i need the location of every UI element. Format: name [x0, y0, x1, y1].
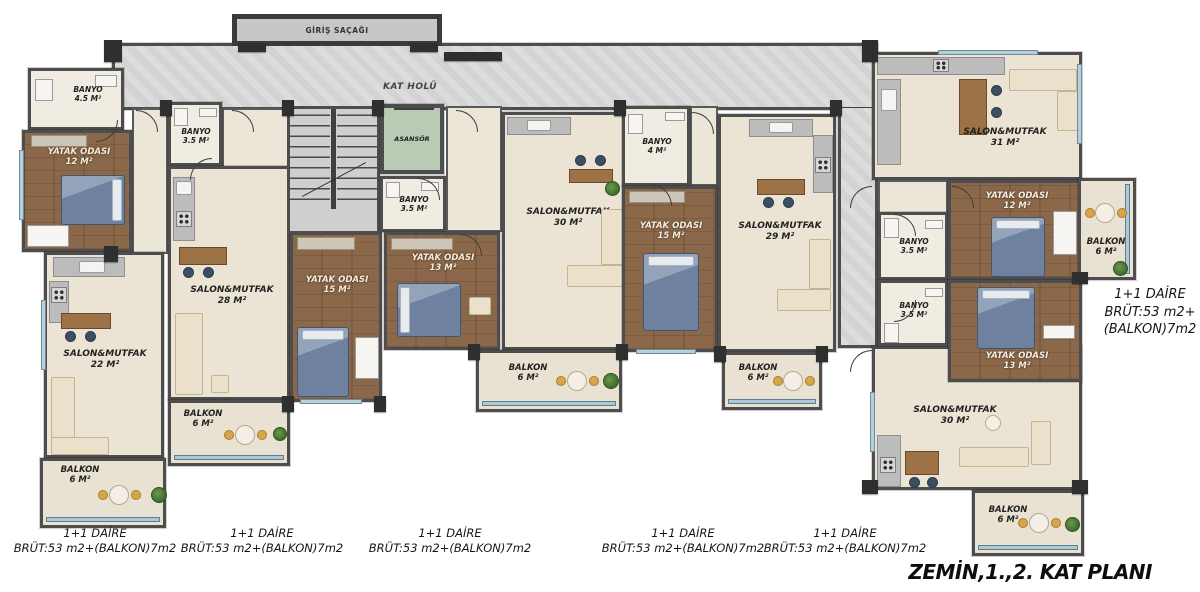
stair-rail — [331, 109, 336, 209]
elevator-door — [394, 108, 434, 110]
stairwell — [287, 106, 380, 234]
pillow-icon — [982, 290, 1030, 299]
shower-icon — [628, 114, 643, 134]
balcony-table-icon — [109, 485, 129, 505]
corridor-label: KAT HOLÜ — [365, 82, 455, 93]
room-apt6-salon: SALON&MUTFAK 31 M² — [872, 52, 1082, 180]
pillow-icon — [112, 179, 122, 221]
plant-icon — [1113, 261, 1128, 276]
canopy-label: GİRİŞ SAÇAĞI — [306, 26, 369, 35]
chair-icon — [909, 477, 920, 488]
sofa-icon — [601, 209, 623, 265]
balcony-table-icon — [235, 425, 255, 445]
sink-icon — [79, 261, 105, 273]
sink-icon — [199, 108, 217, 117]
plant-icon — [273, 427, 287, 441]
plant-icon — [151, 487, 167, 503]
column-pier — [714, 346, 726, 362]
canopy-post — [410, 43, 438, 52]
dining-table-icon — [61, 313, 111, 329]
door-arc — [850, 350, 872, 372]
stove-icon — [880, 457, 896, 473]
chair-icon — [763, 197, 774, 208]
sink-icon — [925, 288, 943, 297]
room-apt3-salon: SALON&MUTFAK 30 M² — [502, 112, 628, 350]
balcony-glass — [728, 399, 816, 404]
room-apt4-balkon: BALKON 6 M² — [722, 352, 822, 410]
balcony-glass — [978, 545, 1078, 550]
balcony-chair-icon — [257, 430, 267, 440]
bed-icon — [643, 253, 699, 331]
sink-icon — [925, 220, 943, 229]
stove-icon — [51, 287, 67, 303]
room-apt7-banyo: BANYO 3.5 M² — [878, 280, 948, 346]
column-pier — [830, 100, 842, 116]
column-pier — [616, 344, 628, 360]
armchair-icon — [469, 297, 491, 315]
wardrobe-icon — [297, 237, 355, 250]
coffee-table-icon — [985, 415, 1001, 431]
column-pier — [160, 100, 172, 116]
stairs-icon — [290, 109, 330, 209]
window — [870, 392, 875, 452]
balcony-chair-icon — [1018, 518, 1028, 528]
unit-label-5: 1+1 DAİRE BRÜT:53 m2+(BALKON)7m2 — [764, 526, 926, 556]
bed-icon — [977, 287, 1035, 349]
chair-icon — [783, 197, 794, 208]
column-pier — [282, 100, 294, 116]
balcony-glass — [174, 455, 284, 460]
room-label: SALON&MUTFAK 22 M² — [53, 349, 157, 371]
room-label: SALON&MUTFAK 31 M² — [935, 127, 1075, 149]
elevator: ASANSÖR — [380, 104, 444, 174]
room-apt3-banyo: BANYO 3.5 M² — [380, 176, 446, 232]
pillow-icon — [302, 330, 344, 340]
dining-table-icon — [905, 451, 939, 475]
room-label: BANYO 3.5 M² — [173, 127, 219, 145]
room-label: BANYO 4.5 M² — [53, 85, 123, 103]
apt6-entry-hall — [878, 180, 948, 214]
chair-icon — [85, 331, 96, 342]
chair-icon — [991, 85, 1002, 96]
chair-icon — [991, 107, 1002, 118]
room-apt3-balkon: BALKON 6 M² — [476, 350, 622, 412]
lintel-beam — [444, 52, 502, 61]
chair-icon — [595, 155, 606, 166]
chair-icon — [575, 155, 586, 166]
plant-icon — [605, 181, 620, 196]
room-apt2-banyo: BANYO 3.5 M² — [168, 102, 222, 166]
balcony-table-icon — [783, 371, 803, 391]
room-label: YATAK ODASI 15 M² — [625, 221, 717, 241]
balcony-table-icon — [1029, 513, 1049, 533]
room-label: YATAK ODASI 13 M² — [965, 351, 1069, 371]
stove-icon — [933, 59, 949, 72]
room-label: BALKON 6 M² — [47, 465, 113, 485]
room-apt6-balkon: BALKON 6 M² — [1078, 178, 1136, 280]
column-pier — [1072, 272, 1088, 284]
wardrobe-icon — [31, 135, 87, 147]
wardrobe-icon — [391, 238, 453, 250]
balcony-chair-icon — [556, 376, 566, 386]
sofa-icon — [777, 289, 831, 311]
unit-label-2: 1+1 DAİRE BRÜT:53 m2+(BALKON)7m2 — [181, 526, 343, 556]
pillow-icon — [996, 220, 1040, 229]
bed-icon — [991, 217, 1045, 277]
room-apt2-salon: SALON&MUTFAK 28 M² — [168, 166, 290, 400]
room-apt4-salon: SALON&MUTFAK 29 M² — [718, 114, 836, 352]
column-pier — [374, 396, 386, 412]
room-label: BALKON 6 M² — [1081, 237, 1131, 257]
chair-icon — [65, 331, 76, 342]
room-apt1-yatak: YATAK ODASI 12 M² — [22, 130, 132, 252]
balcony-chair-icon — [1117, 208, 1127, 218]
pillow-icon — [648, 256, 694, 266]
column-pier — [614, 100, 626, 116]
column-pier — [372, 100, 384, 116]
sink-icon — [769, 122, 793, 133]
column-pier — [104, 40, 122, 62]
room-label: YATAK ODASI 12 M² — [967, 191, 1067, 211]
floor-plan: KAT HOLÜ GİRİŞ SAÇAĞI BANYO 4.5 M² YATAK… — [0, 0, 1200, 592]
balcony-glass — [46, 517, 160, 522]
room-apt1-salon: SALON&MUTFAK 22 M² — [44, 252, 164, 458]
window — [41, 300, 46, 370]
plant-icon — [1065, 517, 1080, 532]
chair-icon — [183, 267, 194, 278]
sink-icon — [527, 120, 551, 131]
room-label: BANYO 4 M² — [627, 137, 687, 155]
dining-table-icon — [757, 179, 805, 195]
stairs-icon — [337, 109, 377, 209]
room-apt7-balkon: BALKON 6 M² — [972, 490, 1084, 556]
desk-icon — [355, 337, 379, 379]
balcony-chair-icon — [131, 490, 141, 500]
sofa-icon — [809, 239, 831, 289]
room-label: BANYO 3.5 M² — [883, 237, 945, 255]
room-label: SALON&MUTFAK 28 M² — [181, 285, 283, 307]
room-apt6-banyo: BANYO 3.5 M² — [878, 212, 948, 280]
balcony-chair-icon — [1051, 518, 1061, 528]
plan-title: ZEMİN,1.,2. KAT PLANI — [908, 560, 1152, 584]
room-apt7-yatak: YATAK ODASI 13 M² — [948, 280, 1082, 382]
room-label: BALKON 6 M² — [495, 363, 561, 383]
unit-label-4: 1+1 DAİRE BRÜT:53 m2+(BALKON)7m2 — [602, 526, 764, 556]
window — [1077, 64, 1082, 144]
column-pier — [862, 480, 878, 494]
sofa-icon — [175, 313, 203, 395]
bed-icon — [297, 327, 349, 397]
bench-icon — [1043, 325, 1075, 339]
room-apt1-balkon: BALKON 6 M² — [40, 458, 166, 528]
window — [19, 150, 24, 220]
room-label: YATAK ODASI 15 M² — [293, 275, 381, 295]
room-label: YATAK ODASI 12 M² — [29, 147, 129, 167]
stove-icon — [815, 157, 831, 173]
unit-label-1: 1+1 DAİRE BRÜT:53 m2+(BALKON)7m2 — [14, 526, 176, 556]
room-apt4-banyo: BANYO 4 M² — [622, 106, 690, 186]
sink-icon — [176, 181, 192, 195]
balcony-glass — [482, 401, 616, 406]
sofa-icon — [567, 265, 623, 287]
unit-label-right: 1+1 DAİRE BRÜT:53 m2+ (BALKON)7m2 — [1104, 286, 1197, 339]
shower-icon — [884, 323, 899, 343]
balcony-glass — [1125, 184, 1130, 274]
balcony-chair-icon — [773, 376, 783, 386]
washer-icon — [35, 79, 53, 101]
sofa-icon — [1009, 69, 1077, 91]
sofa-icon — [1031, 421, 1051, 465]
entrance-canopy: GİRİŞ SAÇAĞI — [232, 14, 442, 46]
armchair-icon — [211, 375, 229, 393]
room-apt2-yatak: YATAK ODASI 15 M² — [290, 232, 382, 402]
elevator-label: ASANSÖR — [384, 136, 440, 144]
unit-label-3: 1+1 DAİRE BRÜT:53 m2+(BALKON)7m2 — [369, 526, 531, 556]
room-label: BALKON 6 M² — [173, 409, 233, 429]
desk-icon — [27, 225, 69, 247]
room-apt2-balkon: BALKON 6 M² — [168, 400, 290, 466]
balcony-table-icon — [567, 371, 587, 391]
column-pier — [816, 346, 828, 362]
room-apt3-yatak: YATAK ODASI 13 M² — [384, 232, 500, 350]
window — [636, 349, 696, 354]
window — [938, 50, 1038, 55]
plant-icon — [603, 373, 619, 389]
sink-icon — [665, 112, 685, 121]
column-pier — [1072, 480, 1088, 494]
sink-icon — [881, 89, 897, 111]
canopy-post — [238, 43, 266, 52]
balcony-chair-icon — [1085, 208, 1095, 218]
shower-icon — [174, 108, 188, 126]
desk-icon — [1053, 211, 1077, 255]
balcony-chair-icon — [805, 376, 815, 386]
sofa-icon — [1057, 91, 1079, 131]
chair-icon — [927, 477, 938, 488]
pillow-icon — [400, 287, 410, 333]
sofa-icon — [959, 447, 1029, 467]
balcony-chair-icon — [98, 490, 108, 500]
balcony-chair-icon — [589, 376, 599, 386]
chair-icon — [203, 267, 214, 278]
column-pier — [862, 40, 878, 62]
bed-icon — [397, 283, 461, 337]
room-label: YATAK ODASI 13 M² — [393, 253, 493, 273]
window — [300, 399, 362, 404]
balcony-chair-icon — [224, 430, 234, 440]
column-pier — [104, 246, 118, 262]
stove-icon — [176, 211, 192, 227]
dining-table-icon — [179, 247, 227, 265]
balcony-table-icon — [1095, 203, 1115, 223]
dining-table-icon — [569, 169, 613, 183]
column-pier — [468, 344, 480, 360]
sofa-icon — [51, 437, 109, 455]
bed-icon — [61, 175, 125, 225]
room-apt4-yatak: YATAK ODASI 15 M² — [622, 186, 718, 352]
column-pier — [282, 396, 294, 412]
